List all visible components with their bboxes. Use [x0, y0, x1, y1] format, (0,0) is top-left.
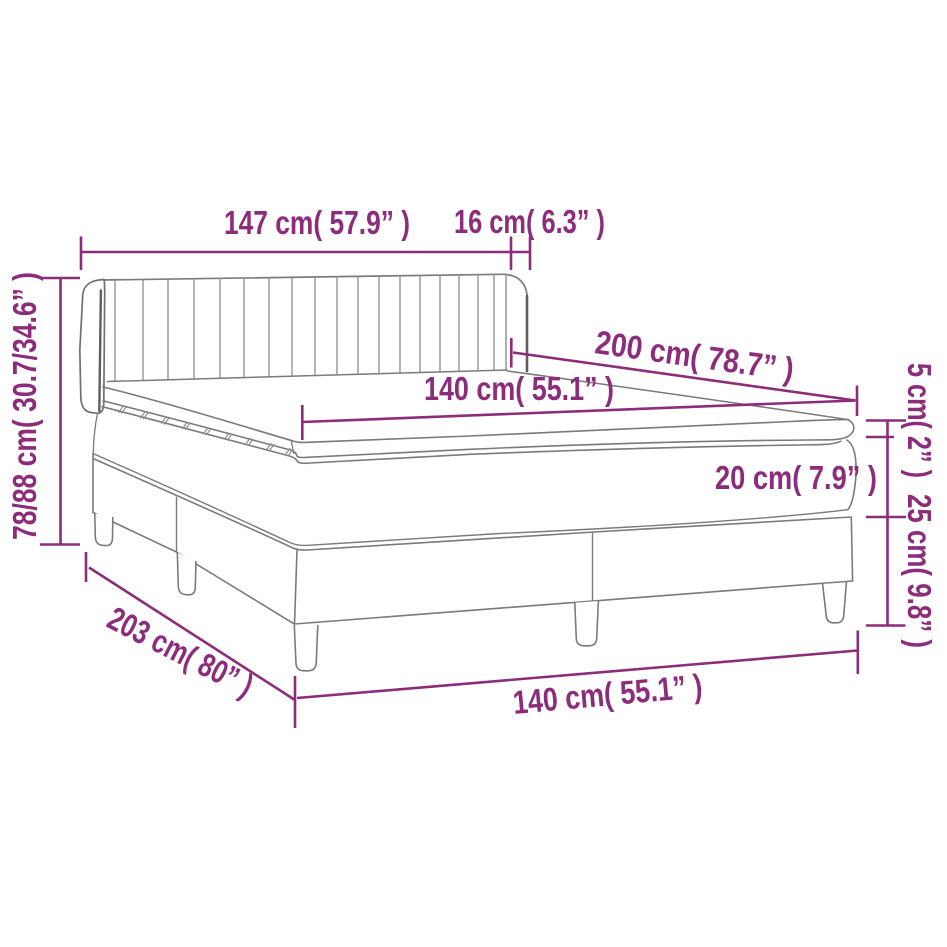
- svg-text:140 cm( 55.1” ): 140 cm( 55.1” ): [424, 370, 614, 407]
- svg-text:5 cm( 2” ): 5 cm( 2” ): [901, 363, 938, 478]
- svg-text:78/88 cm( 30.7/34.6” ): 78/88 cm( 30.7/34.6” ): [6, 272, 43, 540]
- svg-text:20 cm( 7.9” ): 20 cm( 7.9” ): [715, 459, 877, 496]
- svg-text:16 cm( 6.3” ): 16 cm( 6.3” ): [454, 203, 605, 240]
- svg-text:147 cm( 57.9” ): 147 cm( 57.9” ): [224, 204, 410, 241]
- svg-text:25 cm( 9.8” ): 25 cm( 9.8” ): [901, 494, 938, 648]
